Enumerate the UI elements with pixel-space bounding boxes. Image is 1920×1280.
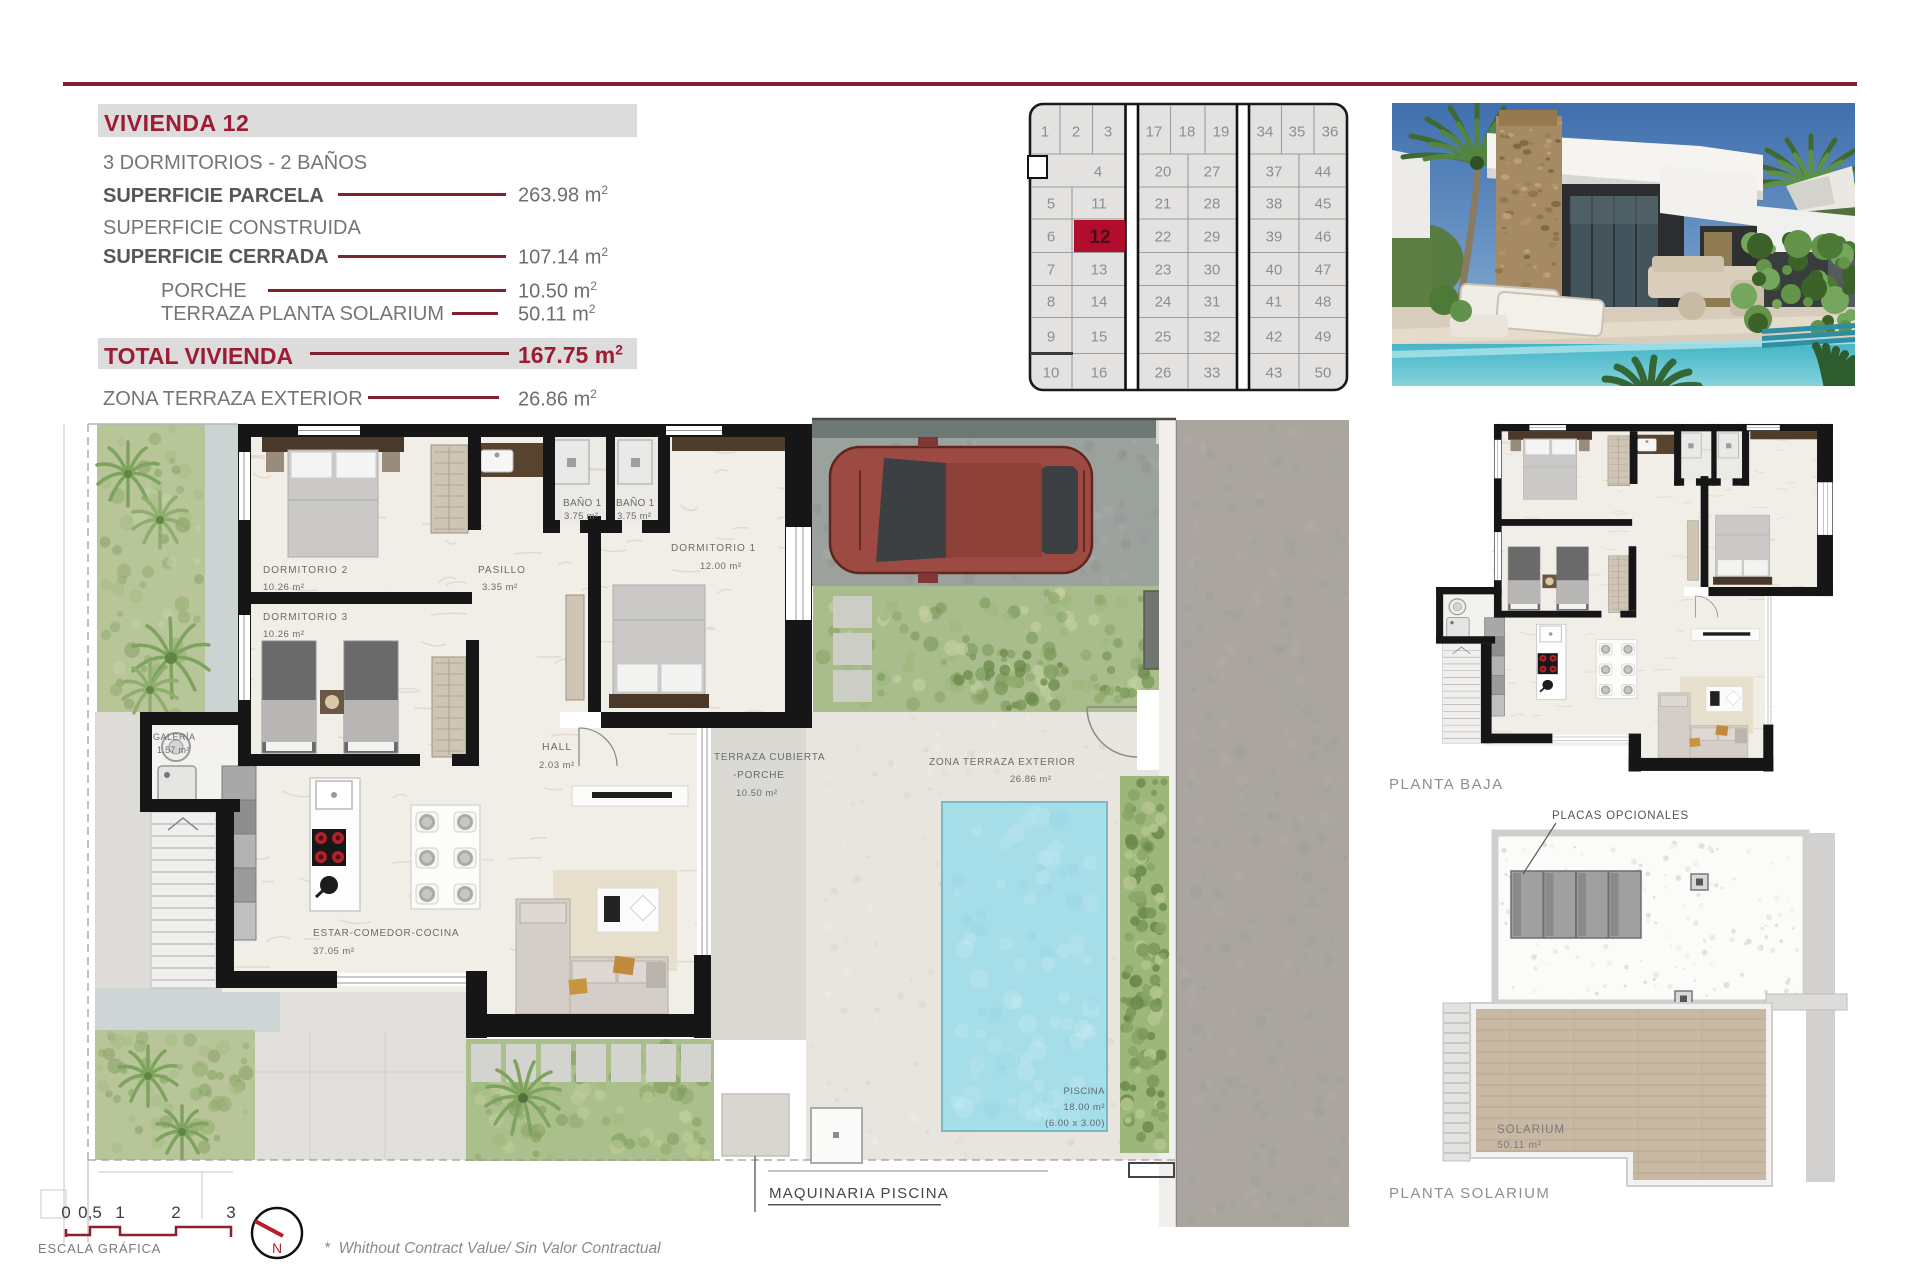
- svg-text:49: 49: [1315, 329, 1332, 346]
- svg-text:17: 17: [1146, 124, 1163, 141]
- svg-text:34: 34: [1257, 124, 1274, 141]
- svg-text:0,5: 0,5: [78, 1203, 102, 1222]
- svg-text:32: 32: [1204, 329, 1221, 346]
- svg-text:9: 9: [1047, 329, 1055, 346]
- svg-text:10: 10: [1043, 365, 1060, 382]
- svg-text:43: 43: [1266, 365, 1283, 382]
- svg-text:24: 24: [1155, 294, 1172, 311]
- svg-text:38: 38: [1266, 196, 1283, 213]
- svg-text:11: 11: [1091, 196, 1107, 213]
- svg-text:33: 33: [1204, 365, 1221, 382]
- svg-text:DORMITORIO 1: DORMITORIO 1: [671, 543, 756, 554]
- svg-text:PASILLO: PASILLO: [478, 565, 526, 576]
- svg-text:20: 20: [1155, 164, 1172, 181]
- svg-text:35: 35: [1289, 124, 1306, 141]
- svg-text:BAÑO 1: BAÑO 1: [563, 496, 602, 509]
- svg-text:ZONA TERRAZA EXTERIOR: ZONA TERRAZA EXTERIOR: [929, 757, 1076, 768]
- svg-text:47: 47: [1315, 262, 1332, 279]
- svg-text:31: 31: [1204, 294, 1221, 311]
- svg-text:50.11 m²: 50.11 m²: [1497, 1139, 1542, 1151]
- svg-text:7: 7: [1047, 262, 1055, 279]
- svg-text:2.03 m²: 2.03 m²: [539, 760, 575, 771]
- svg-text:ESTAR-COMEDOR-COCINA: ESTAR-COMEDOR-COCINA: [313, 928, 459, 939]
- svg-text:50: 50: [1315, 365, 1332, 382]
- svg-text:29: 29: [1204, 229, 1221, 246]
- svg-text:12: 12: [1089, 227, 1110, 248]
- svg-text:30: 30: [1204, 262, 1221, 279]
- svg-text:44: 44: [1315, 164, 1332, 181]
- svg-text:10.26 m²: 10.26 m²: [263, 629, 305, 640]
- svg-text:22: 22: [1155, 229, 1172, 246]
- svg-text:6: 6: [1047, 229, 1055, 246]
- svg-text:DORMITORIO 2: DORMITORIO 2: [263, 565, 348, 576]
- svg-text:27: 27: [1204, 164, 1221, 181]
- svg-text:DORMITORIO 3: DORMITORIO 3: [263, 612, 348, 623]
- svg-text:-PORCHE: -PORCHE: [733, 770, 785, 781]
- svg-text:45: 45: [1315, 196, 1332, 213]
- svg-text:3.75 m²: 3.75 m²: [564, 511, 598, 522]
- svg-text:40: 40: [1266, 262, 1283, 279]
- svg-text:2: 2: [171, 1203, 180, 1222]
- svg-text:41: 41: [1266, 294, 1283, 311]
- svg-text:3.75 m²: 3.75 m²: [617, 511, 651, 522]
- svg-text:37: 37: [1266, 164, 1283, 181]
- svg-text:36: 36: [1322, 124, 1339, 141]
- svg-text:13: 13: [1091, 262, 1108, 279]
- svg-text:10.50 m²: 10.50 m²: [736, 788, 778, 799]
- svg-text:HALL: HALL: [542, 741, 572, 753]
- svg-text:1.57 m²: 1.57 m²: [157, 745, 190, 755]
- svg-text:3: 3: [1104, 124, 1112, 141]
- svg-text:15: 15: [1091, 329, 1108, 346]
- svg-text:18.00 m²: 18.00 m²: [1064, 1102, 1106, 1113]
- svg-text:1: 1: [115, 1203, 124, 1222]
- svg-text:12.00 m²: 12.00 m²: [700, 561, 742, 572]
- svg-text:(6.00 x 3.00): (6.00 x 3.00): [1045, 1118, 1105, 1129]
- svg-text:SOLARIUM: SOLARIUM: [1497, 1124, 1565, 1136]
- svg-text:25: 25: [1155, 329, 1172, 346]
- svg-text:42: 42: [1266, 329, 1283, 346]
- svg-text:PISCINA: PISCINA: [1063, 1086, 1105, 1097]
- svg-text:2: 2: [1072, 124, 1080, 141]
- svg-text:3: 3: [226, 1203, 235, 1222]
- svg-text:18: 18: [1179, 124, 1196, 141]
- svg-text:23: 23: [1155, 262, 1172, 279]
- svg-text:5: 5: [1047, 196, 1055, 213]
- svg-text:1: 1: [1041, 124, 1049, 141]
- svg-text:26: 26: [1155, 365, 1172, 382]
- svg-text:16: 16: [1091, 365, 1108, 382]
- svg-text:BAÑO 1: BAÑO 1: [616, 496, 655, 509]
- svg-text:0: 0: [61, 1203, 70, 1222]
- svg-text:4: 4: [1094, 164, 1102, 181]
- svg-text:21: 21: [1155, 196, 1172, 213]
- svg-text:PLACAS OPCIONALES: PLACAS OPCIONALES: [1552, 810, 1689, 822]
- svg-text:46: 46: [1315, 229, 1332, 246]
- svg-text:14: 14: [1091, 294, 1108, 311]
- svg-text:3.35 m²: 3.35 m²: [482, 582, 518, 593]
- svg-text:10.26 m²: 10.26 m²: [263, 582, 305, 593]
- svg-text:26.86 m²: 26.86 m²: [1010, 774, 1052, 785]
- svg-text:39: 39: [1266, 229, 1283, 246]
- svg-text:28: 28: [1204, 196, 1221, 213]
- svg-text:8: 8: [1047, 294, 1055, 311]
- svg-text:GALERÍA: GALERÍA: [153, 732, 196, 742]
- svg-text:37.05 m²: 37.05 m²: [313, 946, 355, 957]
- svg-text:19: 19: [1213, 124, 1230, 141]
- svg-text:MAQUINARIA PISCINA: MAQUINARIA PISCINA: [769, 1185, 949, 1202]
- svg-text:TERRAZA CUBIERTA: TERRAZA CUBIERTA: [714, 752, 825, 763]
- svg-text:48: 48: [1315, 294, 1332, 311]
- svg-text:N: N: [272, 1240, 282, 1256]
